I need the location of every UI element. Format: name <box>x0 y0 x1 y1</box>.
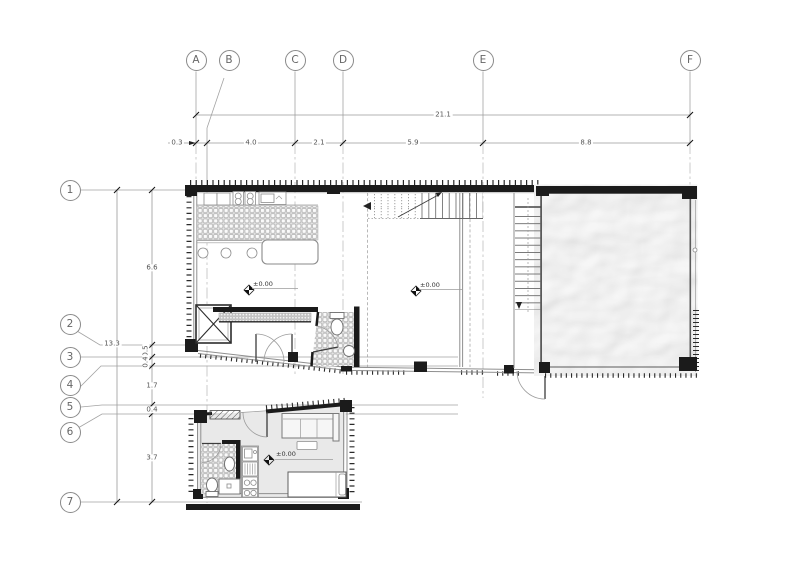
dim-seg-67: 3.7 <box>145 454 159 461</box>
grid-bubble-row-1: 1 <box>60 180 81 201</box>
grid-bubble-row-6: 6 <box>60 422 81 443</box>
kitchen <box>197 192 318 265</box>
level-label-annex: ±0.00 <box>276 450 296 458</box>
toilet-icon <box>207 478 218 492</box>
annex-bathroom <box>201 440 241 497</box>
sink-icon <box>344 346 355 357</box>
pool-water <box>542 194 691 368</box>
grid-bubble-row-5: 5 <box>60 397 81 418</box>
grid-bubble-row-2: 2 <box>60 314 81 335</box>
sink-icon <box>225 457 235 471</box>
annex-louver-wall <box>210 411 240 420</box>
main-building <box>185 183 545 400</box>
pool-area <box>514 186 697 376</box>
dim-seg-12: 6.6 <box>145 264 159 271</box>
stool-icon <box>221 248 231 258</box>
level-label-kitchen: ±0.00 <box>253 280 273 288</box>
annex-kitchenette <box>242 446 259 497</box>
grid-bubble-col-b: B <box>219 50 240 71</box>
sofa-icon <box>282 414 339 439</box>
grid-bubble-row-4: 4 <box>60 375 81 396</box>
stairs <box>363 192 483 219</box>
ground-line <box>186 504 360 510</box>
floor-plan-sheet: A B C D E F 1 2 3 4 5 6 7 21.1 0.3 4.0 2… <box>0 0 787 576</box>
level-label-hall: ±0.00 <box>420 281 440 289</box>
grid-bubble-col-e: E <box>473 50 494 71</box>
dim-seg-ef: 8.8 <box>579 139 593 146</box>
stool-icon <box>247 248 257 258</box>
dim-seg-34: 0.4 <box>142 354 149 368</box>
grid-bubble-row-3: 3 <box>60 347 81 368</box>
grid-bubble-row-7: 7 <box>60 492 81 513</box>
grid-bubble-col-c: C <box>285 50 306 71</box>
main-bathroom <box>213 306 360 371</box>
kitchen-island <box>262 240 318 264</box>
dim-total-width: 21.1 <box>434 111 453 118</box>
bed-icon <box>288 472 346 497</box>
grid-bubble-col-d: D <box>333 50 354 71</box>
burner-icon <box>244 480 249 485</box>
floor-plan-drawing <box>0 0 787 576</box>
pool-stair <box>515 198 541 312</box>
dim-seg-bc: 4.0 <box>244 139 258 146</box>
annex-building <box>186 400 360 510</box>
dim-seg-de: 5.9 <box>406 139 420 146</box>
stool-icon <box>198 248 208 258</box>
grid-bubble-col-a: A <box>186 50 207 71</box>
coffee-table-icon <box>297 442 317 450</box>
dim-seg-cd: 2.1 <box>312 139 326 146</box>
dim-seg-ab: 0.3 <box>170 139 184 146</box>
grid-bubble-col-f: F <box>680 50 701 71</box>
dim-seg-45: 1.7 <box>145 382 159 389</box>
toilet-icon <box>331 319 343 335</box>
dim-seg-56: 0.4 <box>145 406 159 413</box>
dim-total-height: 13.3 <box>103 340 122 347</box>
terrace-door <box>517 371 545 399</box>
